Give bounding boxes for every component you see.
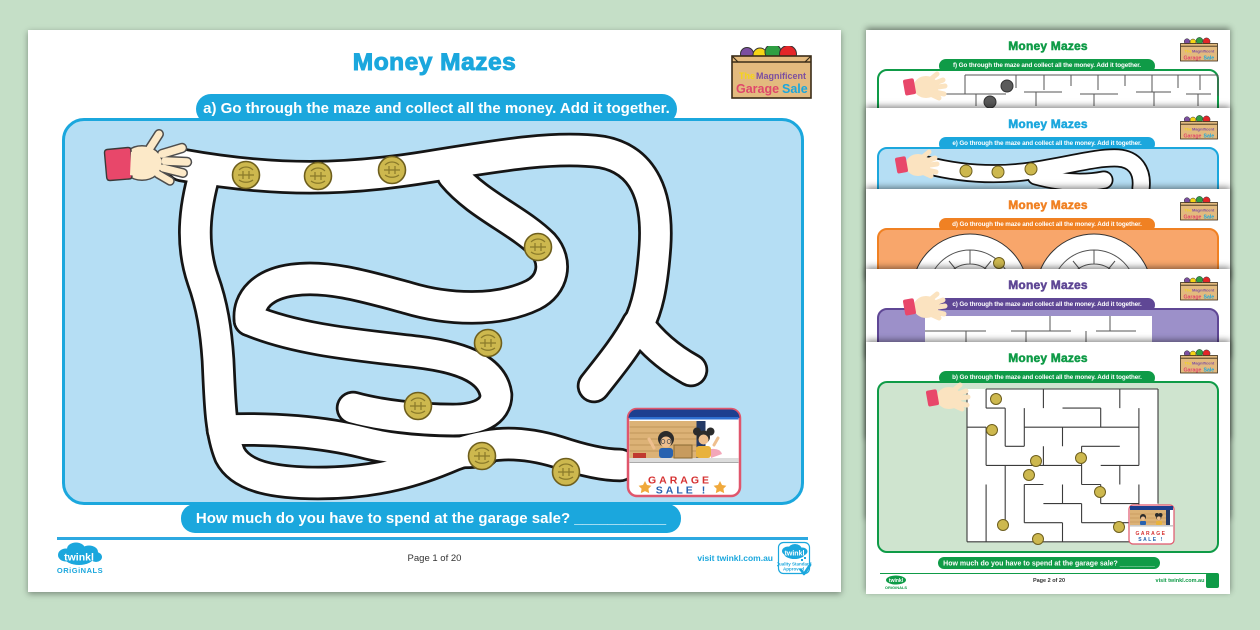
svg-text:Page 2 of 20: Page 2 of 20 (1033, 578, 1065, 584)
svg-text:twinkl: twinkl (64, 552, 94, 564)
svg-text:Magnificent: Magnificent (756, 71, 806, 81)
svg-text:Garage: Garage (736, 82, 779, 96)
svg-text:twinkl: twinkl (889, 578, 904, 584)
svg-text:SALE !: SALE ! (1138, 537, 1163, 543)
svg-text:visit twinkl.com.au: visit twinkl.com.au (1156, 578, 1205, 584)
svg-text:ORiGiNALS: ORiGiNALS (885, 585, 908, 590)
svg-text:The: The (739, 71, 755, 81)
svg-text:Sale: Sale (782, 82, 808, 96)
svg-text:ORiGiNALS: ORiGiNALS (57, 566, 103, 575)
svg-text:twinkl: twinkl (785, 551, 805, 558)
svg-text:How much do you have to spend: How much do you have to spend at the gar… (943, 561, 1155, 568)
svg-text:SALE !: SALE ! (656, 485, 708, 497)
